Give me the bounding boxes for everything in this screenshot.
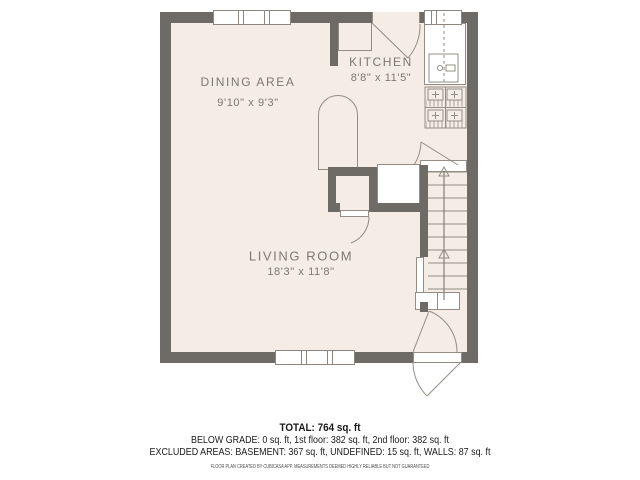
staircase-treads [428, 172, 467, 289]
living-room-label: LIVING ROOM [249, 249, 353, 264]
excluded-areas-text: EXCLUDED AREAS: BASEMENT: 367 sq. ft, UN… [48, 446, 592, 458]
dining-area-dims: 9'10" x 9'3" [217, 97, 278, 109]
stove-hatch [426, 122, 465, 128]
stove-hatch [426, 101, 465, 107]
closet-door-icon [351, 217, 369, 243]
stairs-door-icon [414, 142, 458, 165]
plan-linework [0, 0, 640, 480]
stairs-up-arrow-icon [439, 167, 449, 300]
kitchen-label: KITCHEN [349, 55, 413, 69]
kitchen-dims: 8'8" x 11'5" [351, 72, 412, 84]
stove-icon [425, 87, 466, 128]
entry-door-icon [413, 311, 461, 396]
disclaimer-text: FLOOR PLAN CREATED BY CUBICASA APP. MEAS… [64, 464, 576, 470]
living-room-dims: 18'3" x 11'8" [267, 266, 334, 278]
floor-areas-text: BELOW GRADE: 0 sq. ft, 1st floor: 382 sq… [48, 434, 592, 446]
dining-area-label: DINING AREA [201, 75, 296, 89]
floor-plan-page: DINING AREA 9'10" x 9'3" KITCHEN 8'8" x … [0, 0, 640, 480]
total-area-text: TOTAL: 764 sq. ft [32, 422, 608, 434]
kitchen-door-icon [372, 23, 420, 58]
